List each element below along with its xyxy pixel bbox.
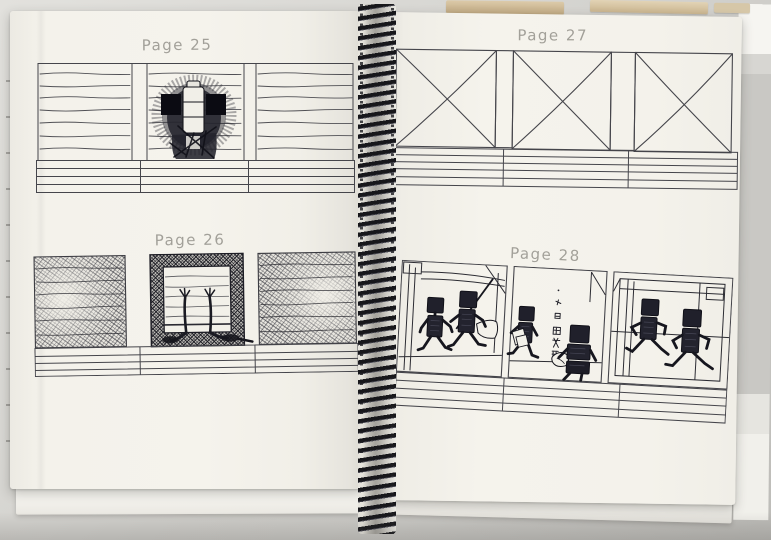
- scribble-panel-left: [34, 256, 126, 348]
- storyboard-strip-page-25: [36, 63, 356, 195]
- robot-seated: [551, 324, 598, 381]
- binding-hole-specks: [6, 80, 10, 470]
- doorway-panel: [150, 253, 252, 347]
- robot-running: [666, 308, 716, 368]
- left-page: Page 25: [10, 11, 363, 489]
- spiral-binding: [358, 4, 396, 534]
- page-title-28: Page 28: [465, 242, 626, 267]
- page-title-27: Page 27: [473, 26, 633, 45]
- robot-walking: [418, 297, 454, 352]
- page-title-26: Page 26: [110, 230, 270, 250]
- storyboard-strip-page-26: [33, 251, 359, 377]
- page-title-25: Page 25: [97, 35, 257, 55]
- caption-table: [393, 148, 737, 190]
- sticky-tab: [590, 0, 708, 14]
- caption-table: [37, 161, 355, 193]
- corridor-lines-left: [398, 261, 507, 375]
- storyboard-strip-page-28: [393, 260, 733, 442]
- crossed-panels: [395, 49, 732, 153]
- page-stack-edge-left: [16, 485, 360, 514]
- creature-sketch: [157, 80, 231, 159]
- robot-with-spear: [448, 277, 500, 350]
- sticky-tab: [714, 3, 750, 14]
- caption-table: [35, 343, 358, 376]
- scribble-panel-right: [258, 252, 356, 345]
- robot-carrying-papers: [508, 306, 541, 358]
- sketchbook-photo: Page 25: [0, 0, 771, 540]
- right-page: Page 27 Page 28: [379, 12, 742, 505]
- page-28-tilted-block: Page 28: [371, 223, 739, 472]
- storyboard-strip-page-27: [393, 48, 741, 195]
- scribbled-wall-marks: [552, 289, 563, 357]
